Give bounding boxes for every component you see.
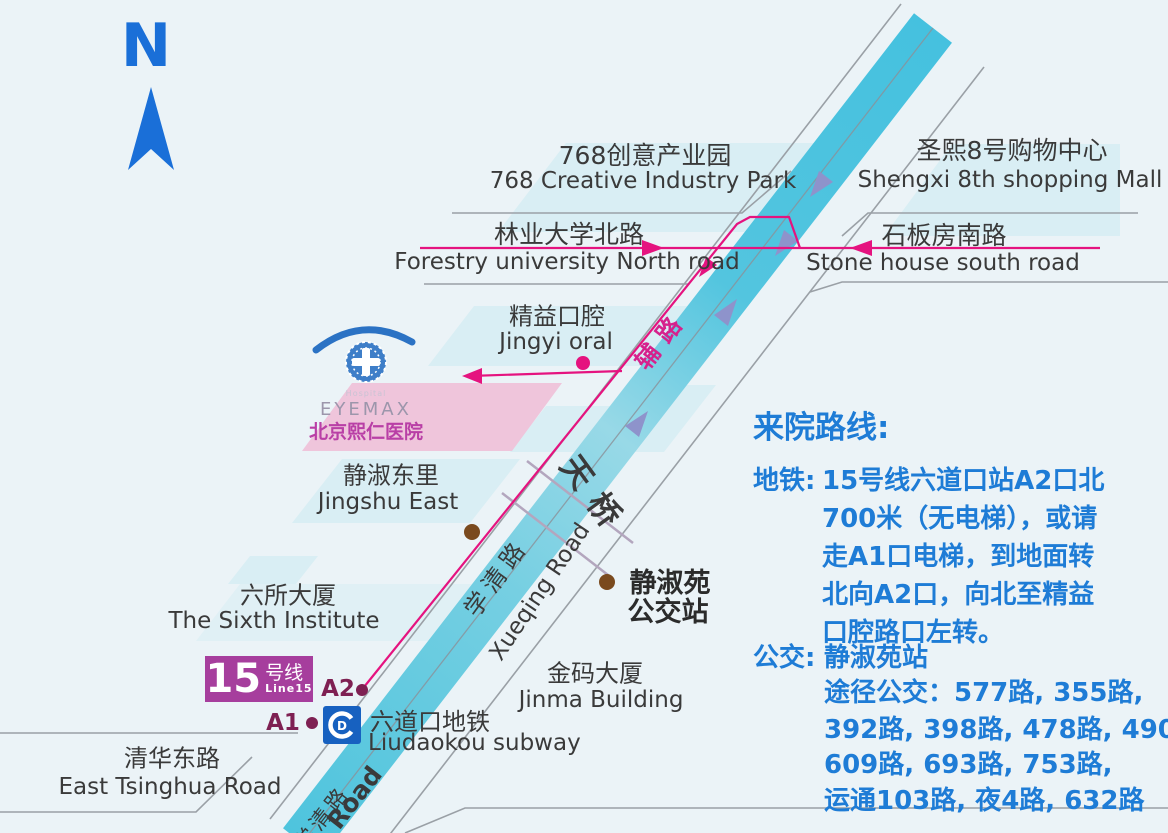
subway-station-label-en: Liudaokou subway [368, 730, 581, 756]
bus-stop-location-dot [599, 574, 615, 590]
jinma-label-cn: 金码大厦 [547, 661, 643, 686]
park-label-en: 768 Creative Industry Park [490, 169, 797, 193]
sixth-institute-label-cn: 六所大厦 [240, 583, 336, 608]
beijing-subway-logo-icon: D [323, 706, 361, 744]
hospital-name-cn: 北京熙仁医院 [309, 423, 423, 442]
svg-text:D: D [337, 719, 347, 733]
jinma-label-en: Jinma Building [519, 688, 684, 712]
subway-direction-line: 700米（无电梯），或请 [822, 498, 1097, 535]
line15-en: Line15 [265, 683, 312, 694]
bus-route-line: 609路, 693路, 753路, [824, 744, 1113, 781]
jingyi-location-dot [576, 356, 590, 370]
jingshu-location-dot [464, 524, 480, 540]
jingyi-label-en: Jingyi oral [499, 330, 613, 354]
jingyi-label-cn: 精益口腔 [509, 304, 605, 329]
forestry-road-label-cn: 林业大学北路 [494, 222, 644, 248]
bus-route-line: 途径公交：577路, 355路, [824, 672, 1143, 709]
directions-heading: 来院路线: [753, 402, 889, 447]
exit-a1-label: A1 [266, 710, 300, 736]
line15-badge: 15 号线 Line15 [205, 656, 313, 702]
mall-label-cn: 圣熙8号购物中心 [917, 138, 1108, 164]
stone-road-label-en: Stone house south road [806, 251, 1080, 275]
exit-a2-label: A2 [321, 676, 355, 702]
tsinghua-road-label-cn: 清华东路 [124, 746, 220, 771]
sixth-institute-label-en: The Sixth Institute [168, 609, 379, 633]
forestry-road-label-en: Forestry university North road [394, 250, 739, 274]
jingshu-label-en: Jingshu East [318, 490, 458, 514]
tsinghua-road-label-en: East Tsinghua Road [58, 775, 281, 799]
compass-north-letter: N [121, 11, 171, 81]
line15-suffix: 号线 [265, 664, 303, 683]
bus-route-line: 392路, 398路, 478路, 490路, [824, 709, 1168, 746]
hospital-label: Hospital EYEMAX 北京熙仁医院 [309, 390, 423, 442]
exit-a1-dot [306, 717, 318, 729]
park-label-cn: 768创意产业园 [559, 143, 732, 169]
hospital-access-map: D N 768创意产业园 768 Creative Industry Park … [0, 0, 1168, 833]
eyemax-logo-icon [316, 330, 412, 382]
block-jingshu-sliver [228, 556, 318, 584]
exit-a2-dot [356, 684, 368, 696]
jingshu-label-cn: 静淑东里 [343, 463, 439, 488]
subway-direction-line: 走A1口电梯，到地面转 [822, 536, 1094, 573]
directions-bus-stop-name: 静淑苑站 [824, 637, 928, 674]
bus-route-line: 运通103路, 夜4路, 632路 [824, 780, 1145, 817]
line15-number: 15 [205, 659, 261, 699]
stone-road-label-cn: 石板房南路 [881, 223, 1006, 249]
hospital-name-en: EYEMAX [309, 401, 423, 419]
bus-stop-label-line2: 公交站 [628, 599, 709, 627]
directions-subway-label: 地铁: [753, 460, 815, 497]
bus-stop-label-line1: 静淑苑 [630, 570, 711, 598]
mall-label-en: Shengxi 8th shopping Mall [858, 168, 1163, 192]
subway-direction-line: 北向A2口，向北至精益 [822, 574, 1094, 611]
subway-direction-line: 15号线六道口站A2口北 [822, 460, 1104, 497]
directions-bus-label: 公交: [753, 637, 815, 674]
hospital-tag: Hospital [309, 390, 423, 398]
north-arrow-icon [128, 87, 174, 170]
